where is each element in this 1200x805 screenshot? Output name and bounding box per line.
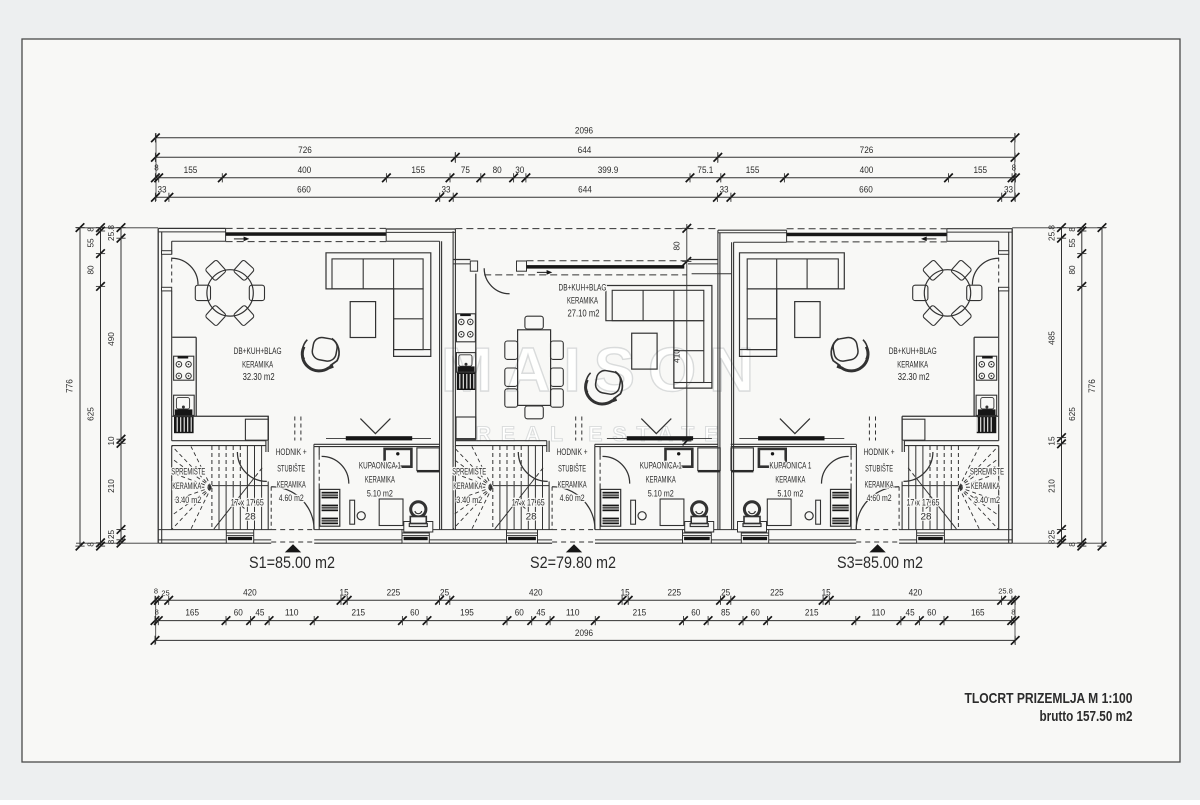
svg-text:225: 225 — [770, 588, 784, 598]
svg-text:3.40 m2: 3.40 m2 — [175, 495, 201, 505]
svg-text:4.60 m2: 4.60 m2 — [560, 493, 585, 503]
svg-text:25: 25 — [107, 530, 116, 540]
svg-text:KERAMIKA: KERAMIKA — [242, 359, 273, 370]
svg-text:110: 110 — [871, 608, 885, 618]
svg-text:SPREMIŠTE: SPREMIŠTE — [970, 466, 1004, 476]
svg-text:45: 45 — [906, 608, 915, 618]
svg-text:5.10 m2: 5.10 m2 — [777, 488, 803, 498]
svg-text:225: 225 — [387, 588, 401, 598]
svg-text:165: 165 — [185, 608, 199, 618]
svg-text:210: 210 — [107, 479, 116, 493]
svg-text:155: 155 — [973, 165, 987, 175]
svg-text:55: 55 — [86, 238, 96, 247]
svg-text:17 x 17.65: 17 x 17.65 — [231, 498, 264, 508]
svg-text:KERAMIKA: KERAMIKA — [558, 480, 588, 490]
svg-text:85: 85 — [721, 608, 730, 618]
svg-text:17 x 17.65: 17 x 17.65 — [512, 498, 545, 508]
svg-text:KERAMIKA: KERAMIKA — [775, 474, 805, 484]
svg-text:KERAMIKA: KERAMIKA — [897, 359, 928, 370]
svg-text:726: 726 — [860, 145, 874, 155]
svg-text:33: 33 — [441, 185, 450, 195]
svg-text:75: 75 — [461, 165, 470, 175]
svg-text:155: 155 — [411, 165, 425, 175]
svg-text:25: 25 — [440, 588, 449, 598]
svg-text:DB+KUH+BLAG: DB+KUH+BLAG — [889, 346, 937, 357]
svg-text:660: 660 — [297, 185, 311, 195]
svg-text:60: 60 — [410, 608, 419, 618]
svg-text:STUBIŠTE: STUBIŠTE — [865, 463, 893, 473]
svg-text:HODNIK +: HODNIK + — [864, 447, 895, 457]
svg-text:KERAMIKA: KERAMIKA — [277, 480, 307, 490]
svg-text:HODNIK +: HODNIK + — [276, 447, 307, 457]
svg-text:110: 110 — [285, 608, 299, 618]
svg-text:75.1: 75.1 — [697, 165, 713, 175]
svg-text:REAL ESTATE: REAL ESTATE — [476, 423, 728, 446]
svg-text:45: 45 — [255, 608, 264, 618]
svg-text:STUBIŠTE: STUBIŠTE — [277, 463, 305, 473]
svg-text:400: 400 — [298, 165, 312, 175]
svg-text:brutto 157.50 m2: brutto 157.50 m2 — [1040, 709, 1133, 725]
svg-text:110: 110 — [566, 608, 580, 618]
svg-text:30: 30 — [515, 165, 524, 175]
svg-text:8: 8 — [155, 608, 159, 617]
svg-text:80: 80 — [493, 165, 502, 175]
svg-text:5.10 m2: 5.10 m2 — [648, 488, 674, 498]
svg-text:8: 8 — [1067, 542, 1077, 547]
svg-text:DB+KUH+BLAG: DB+KUH+BLAG — [559, 282, 607, 293]
svg-text:15: 15 — [822, 588, 831, 598]
svg-text:776: 776 — [65, 379, 75, 393]
svg-text:KERAMIKA: KERAMIKA — [365, 474, 395, 484]
svg-text:225: 225 — [667, 588, 681, 598]
svg-text:660: 660 — [859, 185, 873, 195]
svg-text:45: 45 — [536, 608, 545, 618]
svg-text:625: 625 — [86, 407, 96, 421]
svg-text:3.40 m2: 3.40 m2 — [974, 495, 1000, 505]
svg-text:55: 55 — [1067, 238, 1077, 247]
svg-text:485: 485 — [1048, 331, 1057, 345]
svg-text:25.8: 25.8 — [1048, 225, 1057, 241]
svg-text:SPREMIŠTE: SPREMIŠTE — [171, 466, 205, 476]
svg-text:400: 400 — [860, 165, 874, 175]
svg-text:8: 8 — [1067, 227, 1077, 232]
svg-text:644: 644 — [578, 145, 592, 155]
svg-text:4.60 m2: 4.60 m2 — [279, 493, 304, 503]
svg-text:28: 28 — [245, 512, 256, 522]
svg-text:5.10 m2: 5.10 m2 — [367, 488, 393, 498]
svg-text:625: 625 — [1067, 407, 1077, 421]
svg-text:15: 15 — [1048, 436, 1057, 446]
svg-text:80: 80 — [672, 241, 682, 250]
svg-text:8: 8 — [1012, 164, 1017, 173]
svg-text:S3=85.00 m2: S3=85.00 m2 — [837, 554, 923, 572]
svg-text:TLOCRT PRIZEMLJA M 1:100: TLOCRT PRIZEMLJA M 1:100 — [965, 691, 1133, 707]
svg-text:490: 490 — [107, 332, 116, 346]
svg-text:DB+KUH+BLAG: DB+KUH+BLAG — [234, 346, 282, 357]
svg-text:STUBIŠTE: STUBIŠTE — [558, 463, 586, 473]
svg-text:155: 155 — [746, 165, 760, 175]
svg-text:KERAMIKA: KERAMIKA — [172, 481, 201, 491]
svg-text:420: 420 — [243, 588, 257, 598]
svg-text:8: 8 — [86, 542, 96, 547]
svg-text:2096: 2096 — [575, 628, 593, 638]
svg-text:33: 33 — [1004, 185, 1013, 195]
svg-text:32.30 m2: 32.30 m2 — [243, 372, 275, 383]
svg-text:80: 80 — [1067, 265, 1077, 274]
svg-text:726: 726 — [298, 145, 312, 155]
svg-text:25: 25 — [1048, 530, 1057, 540]
svg-text:KERAMIKA: KERAMIKA — [567, 295, 598, 306]
svg-text:KUPAONICA 1: KUPAONICA 1 — [640, 460, 682, 470]
svg-text:32.30 m2: 32.30 m2 — [898, 372, 930, 383]
svg-text:17 x 17.65: 17 x 17.65 — [907, 498, 940, 508]
svg-text:25: 25 — [161, 589, 169, 598]
svg-text:155: 155 — [184, 165, 198, 175]
svg-text:215: 215 — [805, 608, 819, 618]
svg-text:KUPAONICA 1: KUPAONICA 1 — [769, 460, 811, 470]
svg-text:215: 215 — [351, 608, 365, 618]
svg-text:33: 33 — [719, 185, 728, 195]
svg-text:60: 60 — [751, 608, 760, 618]
svg-text:33: 33 — [157, 185, 166, 195]
svg-text:195: 195 — [460, 608, 474, 618]
svg-text:4.60 m2: 4.60 m2 — [867, 493, 892, 503]
svg-text:60: 60 — [515, 608, 524, 618]
svg-text:KUPAONICA 1: KUPAONICA 1 — [359, 460, 401, 470]
svg-text:60: 60 — [927, 608, 936, 618]
svg-text:KERAMIKA: KERAMIKA — [865, 480, 895, 490]
svg-text:25.8: 25.8 — [998, 587, 1013, 596]
svg-text:8: 8 — [107, 539, 116, 544]
svg-text:2096: 2096 — [575, 126, 593, 136]
svg-text:28: 28 — [526, 512, 537, 522]
svg-text:420: 420 — [529, 588, 543, 598]
svg-text:3.40 m2: 3.40 m2 — [456, 495, 482, 505]
svg-text:10: 10 — [107, 436, 116, 446]
svg-text:8: 8 — [1048, 539, 1057, 544]
svg-text:15: 15 — [340, 588, 349, 598]
svg-text:165: 165 — [971, 608, 985, 618]
svg-text:80: 80 — [86, 265, 96, 274]
svg-text:25: 25 — [721, 588, 730, 598]
svg-text:210: 210 — [1048, 479, 1057, 493]
svg-text:HODNIK +: HODNIK + — [557, 447, 588, 457]
svg-text:KERAMIKA: KERAMIKA — [453, 481, 482, 491]
svg-text:KERAMIKA: KERAMIKA — [646, 474, 676, 484]
svg-text:8: 8 — [86, 227, 96, 232]
svg-text:KERAMIKA: KERAMIKA — [971, 481, 1000, 491]
svg-text:399.9: 399.9 — [598, 165, 619, 175]
svg-text:60: 60 — [234, 608, 243, 618]
svg-text:S1=85.00 m2: S1=85.00 m2 — [249, 554, 335, 572]
svg-text:27.10 m2: 27.10 m2 — [568, 308, 600, 319]
svg-text:644: 644 — [578, 185, 592, 195]
svg-text:215: 215 — [633, 608, 647, 618]
svg-text:28: 28 — [921, 512, 932, 522]
svg-text:S2=79.80 m2: S2=79.80 m2 — [530, 554, 616, 572]
svg-text:SPREMIŠTE: SPREMIŠTE — [452, 466, 486, 476]
svg-text:25.8: 25.8 — [107, 225, 116, 241]
svg-text:8: 8 — [154, 164, 159, 173]
svg-text:776: 776 — [1087, 379, 1097, 393]
svg-text:15: 15 — [621, 588, 630, 598]
svg-text:8: 8 — [154, 587, 158, 596]
svg-text:8: 8 — [1011, 608, 1015, 617]
svg-text:60: 60 — [691, 608, 700, 618]
svg-text:420: 420 — [909, 588, 923, 598]
